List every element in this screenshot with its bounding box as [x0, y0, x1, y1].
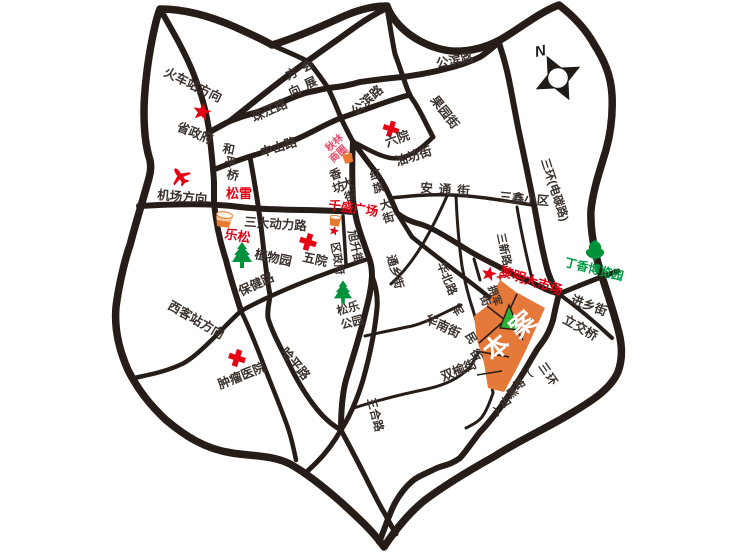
svg-text:双榆街: 双榆街: [438, 356, 480, 385]
svg-text:桥: 桥: [225, 166, 241, 183]
svg-text:公滨路: 公滨路: [348, 82, 386, 119]
svg-text:军: 军: [448, 302, 465, 318]
svg-text:肿瘤医院: 肿瘤医院: [216, 359, 268, 392]
svg-text:立交桥: 立交桥: [561, 312, 601, 344]
svg-text:华北路: 华北路: [434, 260, 460, 298]
svg-text:果园街: 果园街: [427, 92, 463, 132]
svg-text:三合路: 三合路: [364, 396, 387, 433]
svg-text:三环(电碳路): 三环(电碳路): [538, 157, 572, 223]
svg-text:植物园: 植物园: [252, 246, 293, 269]
svg-text:五院: 五院: [301, 249, 329, 269]
svg-text:中山路: 中山路: [258, 134, 299, 160]
svg-text:乐松: 乐松: [223, 226, 251, 245]
svg-text:三新路: 三新路: [494, 232, 515, 268]
svg-text:三大动力路: 三大动力路: [244, 214, 308, 233]
svg-text:N: N: [533, 42, 548, 61]
svg-text:油坊街: 油坊街: [393, 143, 434, 169]
svg-text:西客站方向: 西客站方向: [166, 298, 228, 342]
svg-text:进乡街: 进乡街: [569, 292, 610, 319]
svg-text:三鑫小区: 三鑫小区: [499, 189, 551, 208]
svg-text:松雷: 松雷: [226, 186, 252, 201]
